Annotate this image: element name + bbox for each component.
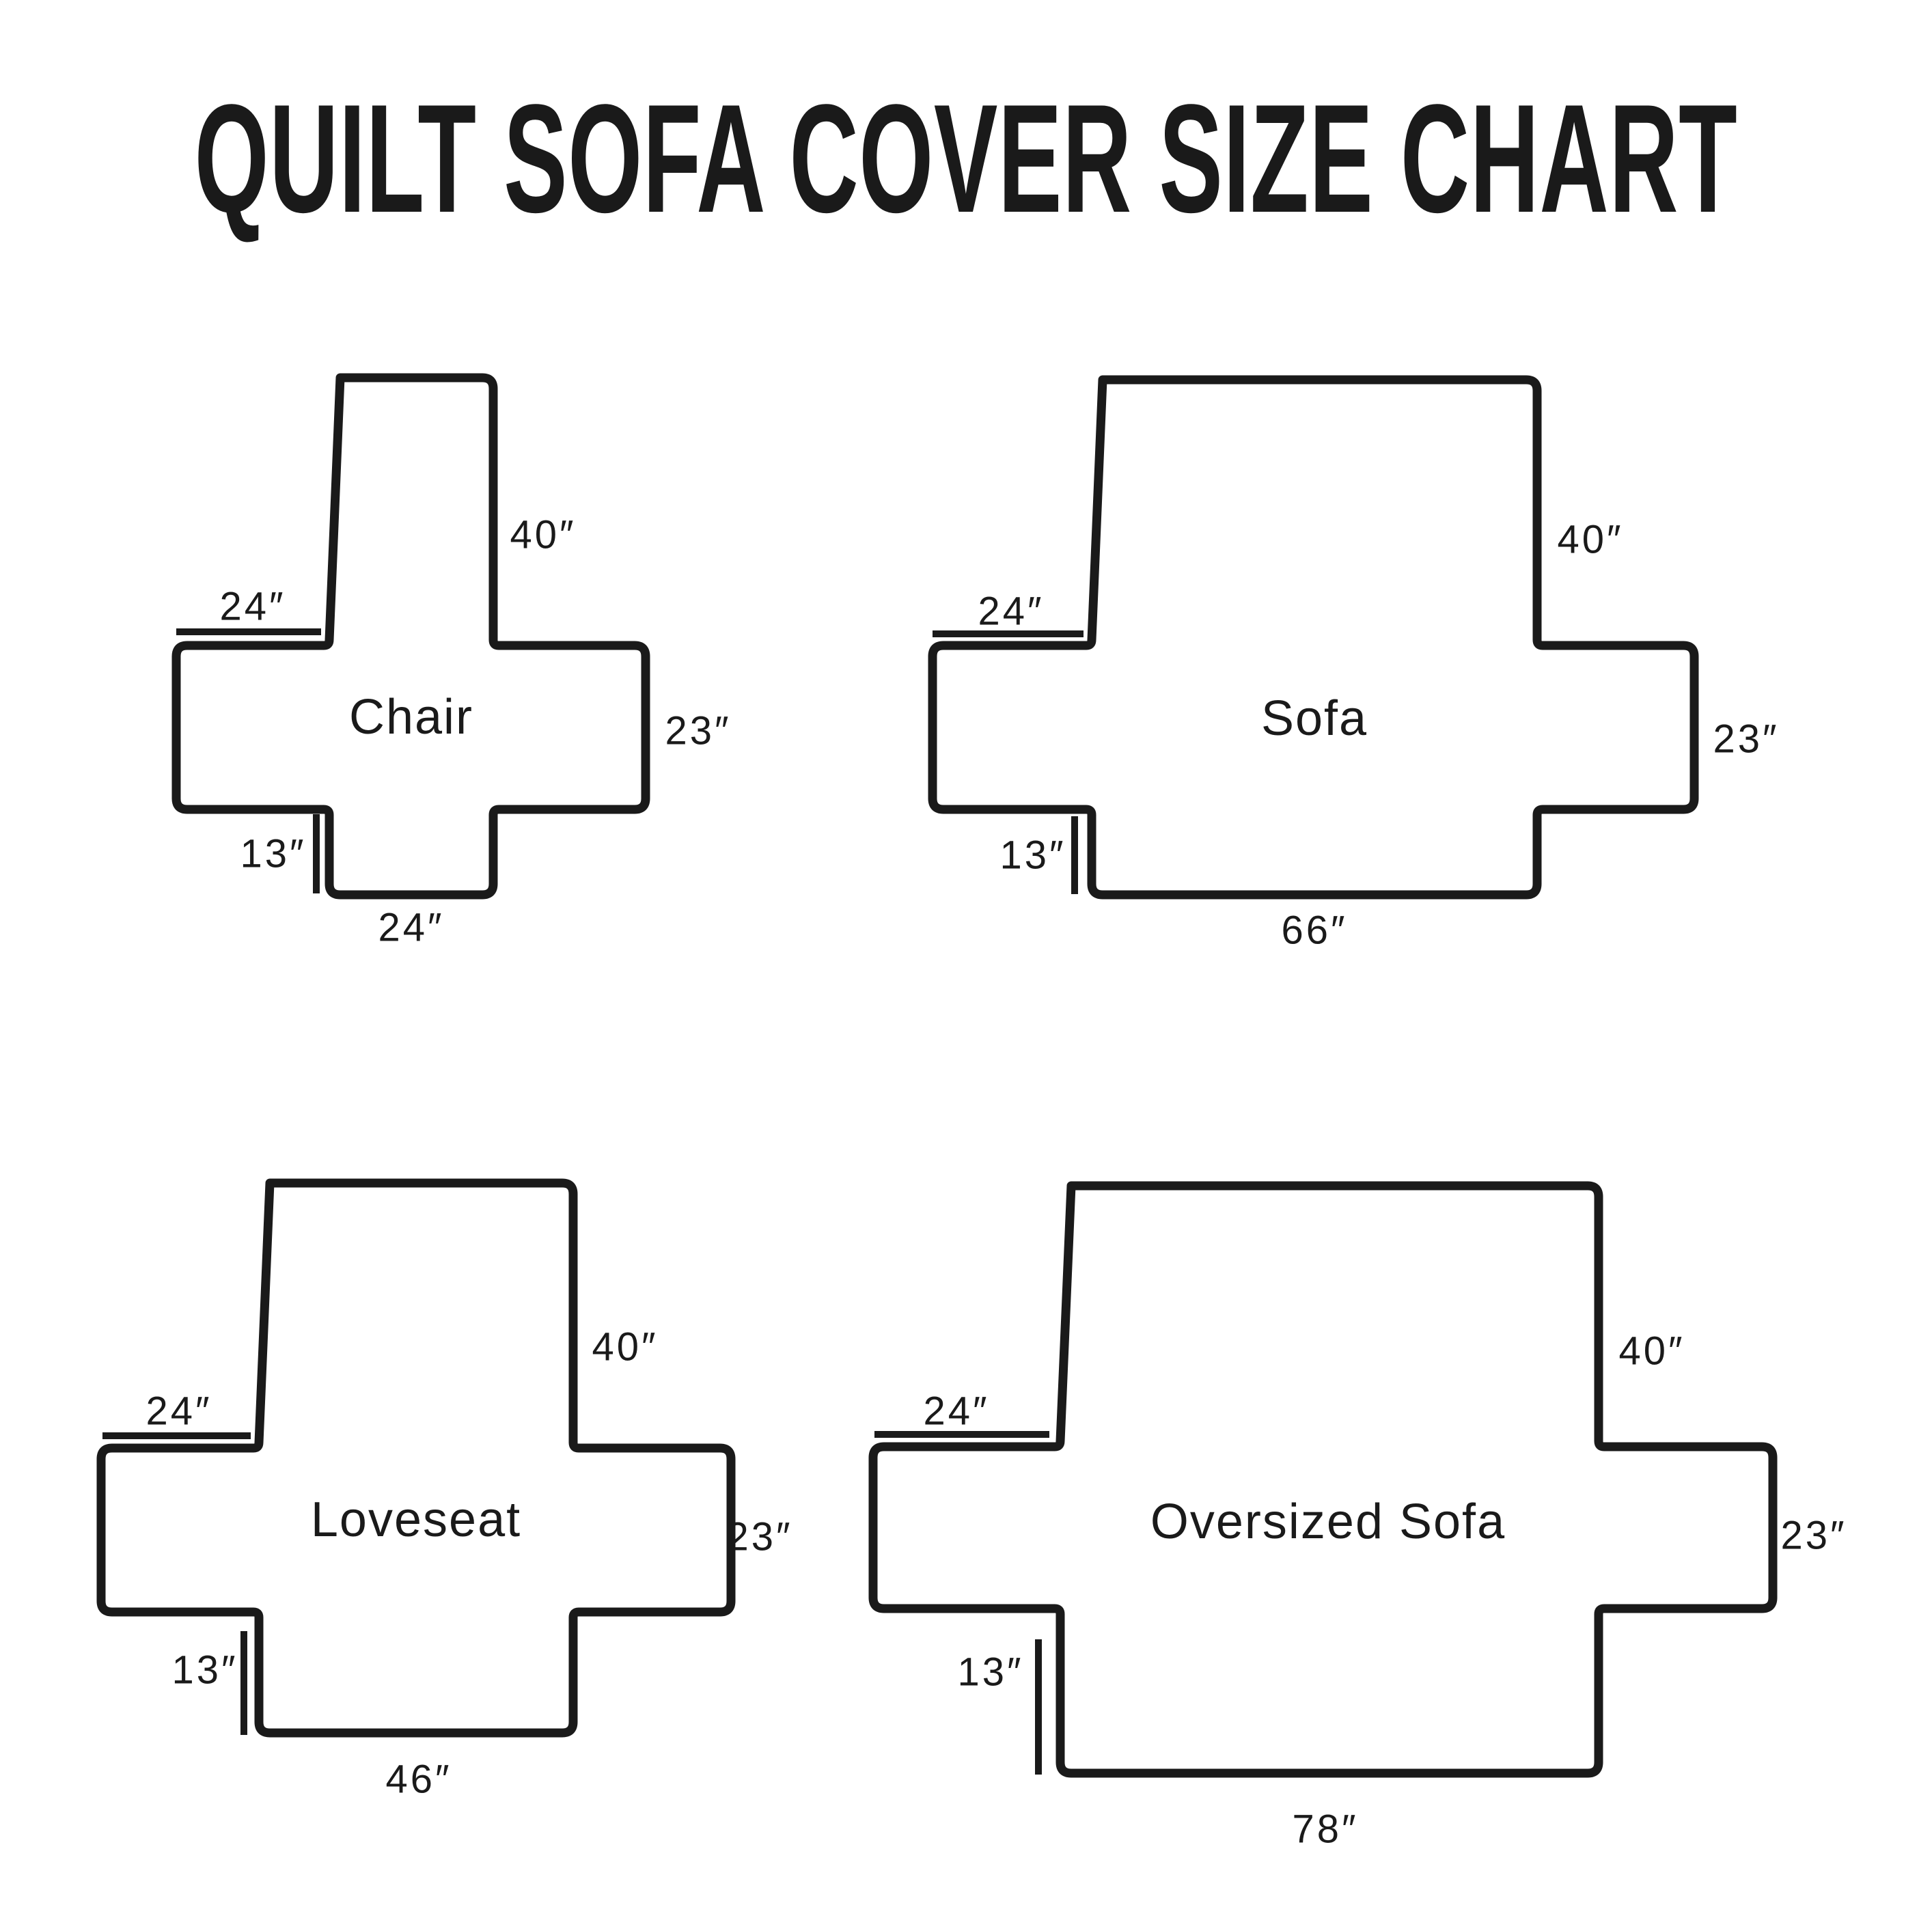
oversized-sofa-front-drop-dimension-line xyxy=(1035,1639,1042,1775)
diagram-canvas xyxy=(0,0,1932,1918)
chair-diagram xyxy=(176,378,646,895)
oversized-sofa-front-drop-label: 13″ xyxy=(957,1650,1023,1695)
loveseat-side-height-label: 23″ xyxy=(726,1514,792,1560)
loveseat-front-drop-dimension-line xyxy=(240,1631,247,1735)
loveseat-arm-width-label: 24″ xyxy=(146,1389,212,1434)
chair-front-drop-dimension-line xyxy=(313,814,320,893)
sofa-name-label: Sofa xyxy=(1261,691,1368,747)
loveseat-name-label: Loveseat xyxy=(311,1492,521,1548)
chair-base-width-label: 24″ xyxy=(378,905,444,951)
oversized-sofa-base-width-label: 78″ xyxy=(1292,1807,1358,1852)
chair-name-label: Chair xyxy=(349,689,473,745)
chair-back-length-label: 40″ xyxy=(510,512,576,558)
loveseat-base-width-label: 46″ xyxy=(385,1757,452,1803)
sofa-front-drop-label: 13″ xyxy=(999,833,1066,878)
sofa-side-height-label: 23″ xyxy=(1713,717,1779,762)
sofa-front-drop-dimension-line xyxy=(1071,816,1078,894)
chair-side-height-label: 23″ xyxy=(665,708,731,754)
chair-arm-width-label: 24″ xyxy=(219,584,286,630)
loveseat-back-length-label: 40″ xyxy=(592,1324,658,1370)
oversized-sofa-arm-width-label: 24″ xyxy=(923,1389,989,1434)
sofa-back-length-label: 40″ xyxy=(1557,517,1623,563)
oversized-sofa-name-label: Oversized Sofa xyxy=(1150,1494,1506,1550)
size-chart-page: QUILT SOFA COVER SIZE CHART 40″ 24″ Chai… xyxy=(0,0,1932,1918)
sofa-base-width-label: 66″ xyxy=(1281,908,1347,954)
chair-front-drop-label: 13″ xyxy=(240,831,306,877)
sofa-arm-width-label: 24″ xyxy=(978,589,1044,635)
oversized-sofa-back-length-label: 40″ xyxy=(1618,1329,1685,1374)
chair-arm-width-dimension-line xyxy=(176,628,321,635)
chair-outline xyxy=(176,378,646,895)
loveseat-front-drop-label: 13″ xyxy=(171,1648,238,1693)
sofa-diagram xyxy=(933,380,1694,895)
oversized-sofa-side-height-label: 23″ xyxy=(1780,1513,1847,1559)
